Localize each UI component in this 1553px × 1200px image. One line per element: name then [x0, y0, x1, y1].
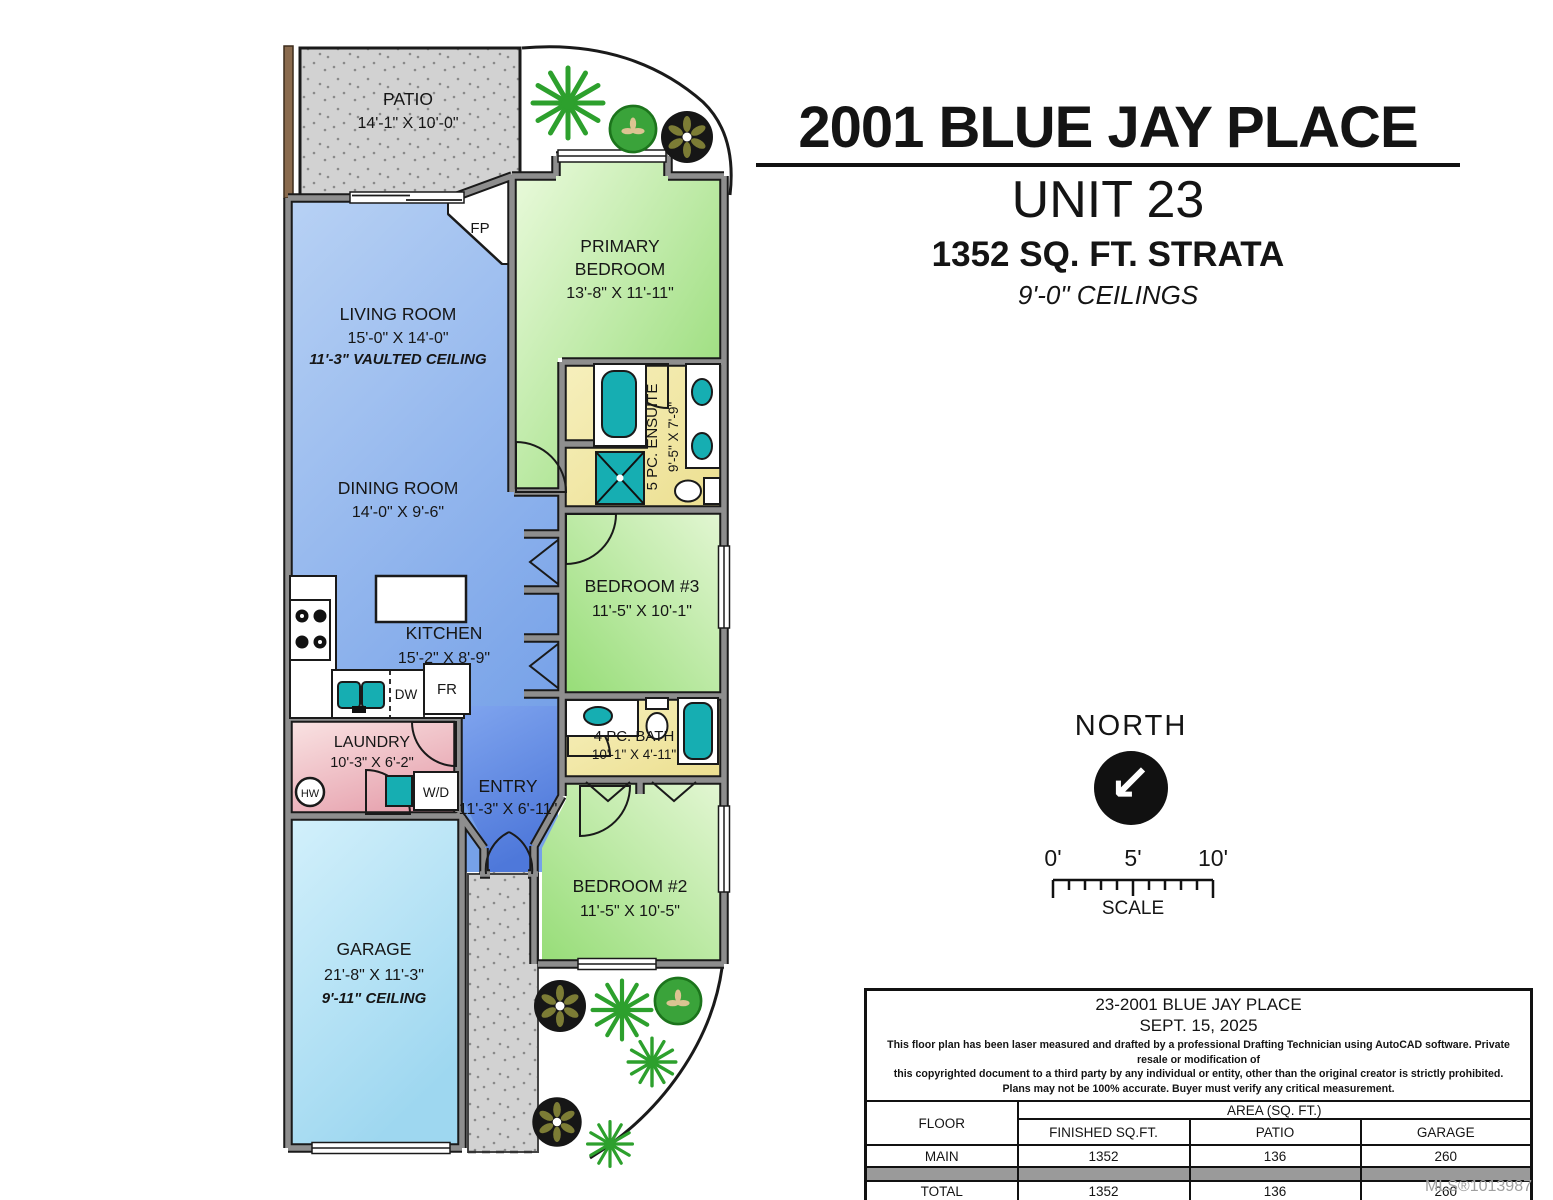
- ensuite-shower: [596, 452, 644, 504]
- bedroom2-window-east: [719, 806, 730, 892]
- washer: [386, 776, 412, 806]
- ceiling-height: 9'-0" CEILINGS: [756, 282, 1460, 309]
- primary-dims: 13'-8" X 11'-11": [566, 285, 674, 302]
- kitchen-label: KITCHEN: [406, 623, 483, 643]
- disclaimer-line-3: Plans may not be 100% accurate. Buyer mu…: [873, 1082, 1524, 1097]
- floor-plan-page: PATIO 14'-1" X 10'-0" LIVING ROOM 15'-0"…: [0, 0, 1553, 1200]
- disclaimer-line-1: This floor plan has been laser measured …: [873, 1038, 1524, 1067]
- table-header-cell: 23-2001 BLUE JAY PLACE SEPT. 15, 2025 Th…: [866, 990, 1532, 1102]
- disclaimer-line-2: this copyrighted document to a third par…: [873, 1067, 1524, 1082]
- primary-bay-window: [558, 150, 666, 162]
- page-title: 2001 BLUE JAY PLACE: [756, 98, 1460, 167]
- garage-dims: 21'-8" X 11'-3": [324, 967, 424, 984]
- kitchen-dims: 15'-2" X 8'-9": [398, 650, 490, 667]
- bedroom2-dims: 11'-5" X 10'-5": [580, 903, 680, 920]
- col-finished-header: FINISHED SQ.FT.: [1018, 1119, 1190, 1145]
- bath-label: 4 PC. BATH: [594, 728, 675, 745]
- dishwasher-label: DW: [395, 687, 418, 702]
- ensuite-sink: [692, 379, 712, 405]
- primary-label-2: BEDROOM: [575, 259, 665, 279]
- main-garage-cell: 260: [1361, 1145, 1532, 1167]
- bedroom2-label: BEDROOM #2: [573, 876, 688, 896]
- dining-dims: 14'-0" X 9'-6": [352, 504, 444, 521]
- north-arrow-icon: ↙: [1109, 758, 1151, 808]
- table-address: 23-2001 BLUE JAY PLACE: [873, 994, 1524, 1015]
- col-patio-header: PATIO: [1190, 1119, 1361, 1145]
- kitchen-sink-2: [362, 682, 384, 708]
- compass-icon: ↙: [1094, 751, 1168, 825]
- bedroom3-dims: 11'-5" X 10'-1": [592, 603, 692, 620]
- fireplace-label: FP: [470, 220, 489, 237]
- bath-sink: [584, 707, 612, 725]
- main-floor-cell: MAIN: [866, 1145, 1018, 1167]
- scale-tick-10: 10': [1198, 846, 1228, 871]
- kitchen-faucet: [352, 706, 366, 713]
- garage-label: GARAGE: [337, 939, 412, 959]
- fence: [284, 46, 293, 198]
- laundry-label: LAUNDRY: [334, 734, 411, 751]
- table-disclaimer: This floor plan has been laser measured …: [873, 1038, 1524, 1096]
- kitchen-island: [376, 576, 466, 622]
- stove: [290, 600, 330, 660]
- bath-dims: 10'-1" X 4'-11": [592, 747, 676, 762]
- dining-label: DINING ROOM: [338, 478, 459, 498]
- living-label: LIVING ROOM: [340, 304, 457, 324]
- separator-cell: [1018, 1167, 1190, 1181]
- total-finished-cell: 1352: [1018, 1181, 1190, 1200]
- scale-tick-5: 5': [1124, 846, 1141, 871]
- area-header: AREA (SQ. FT.): [1018, 1101, 1532, 1119]
- garage-door: [312, 1143, 450, 1154]
- washer-dryer-label: W/D: [423, 785, 449, 800]
- patio-slider-door: [350, 192, 464, 203]
- mls-number: MLS®1013987: [1320, 1178, 1532, 1196]
- ensuite-dims: 9'-5" X 7'-9": [666, 402, 681, 472]
- laundry-dims: 10'-3" X 6'-2": [330, 755, 414, 771]
- hot-water-label: HW: [301, 788, 320, 800]
- primary-label-1: PRIMARY: [580, 236, 660, 256]
- main-patio-cell: 136: [1190, 1145, 1361, 1167]
- ensuite-sink-2: [692, 433, 712, 459]
- scale-tick-0: 0': [1044, 846, 1061, 871]
- scale-ruler: [1053, 880, 1213, 898]
- unit-number: UNIT 23: [756, 173, 1460, 228]
- col-garage-header: GARAGE: [1361, 1119, 1532, 1145]
- room-bedroom2: [542, 784, 720, 960]
- total-floor-cell: TOTAL: [866, 1181, 1018, 1200]
- area-table: 23-2001 BLUE JAY PLACE SEPT. 15, 2025 Th…: [864, 988, 1533, 1200]
- living-note: 11'-3" VAULTED CEILING: [309, 351, 487, 368]
- scale-label: SCALE: [1102, 898, 1164, 918]
- floor-plan-drawing: PATIO 14'-1" X 10'-0" LIVING ROOM 15'-0"…: [0, 0, 760, 1200]
- living-dims: 15'-0" X 14'-0": [347, 330, 448, 347]
- ensuite-tub: [602, 371, 636, 437]
- bedroom3-label: BEDROOM #3: [585, 576, 700, 596]
- bath-tub: [684, 703, 712, 759]
- ensuite-label: 5 PC. ENSUITE: [644, 384, 661, 491]
- col-floor-header: FLOOR: [866, 1101, 1018, 1145]
- scale-bar: 0' 5' 10' SCALE: [1040, 846, 1230, 918]
- north-label: NORTH: [1040, 710, 1222, 743]
- bedroom3-window: [719, 546, 730, 628]
- separator-cell: [866, 1167, 1018, 1181]
- bedroom2-window-south: [578, 959, 656, 970]
- table-date: SEPT. 15, 2025: [873, 1015, 1524, 1036]
- square-footage: 1352 SQ. FT. STRATA: [756, 237, 1460, 274]
- table-row-main: MAIN 1352 136 260: [866, 1145, 1532, 1167]
- north-indicator: NORTH ↙: [1040, 710, 1222, 825]
- main-finished-cell: 1352: [1018, 1145, 1190, 1167]
- patio-label: PATIO: [383, 89, 433, 109]
- entry-dims: 11'-3" X 6'-11": [459, 801, 558, 818]
- kitchen-sink: [338, 682, 360, 708]
- fridge-label: FR: [437, 681, 457, 698]
- title-block: 2001 BLUE JAY PLACE UNIT 23 1352 SQ. FT.…: [756, 98, 1460, 310]
- entry-label: ENTRY: [479, 776, 538, 796]
- garage-note: 9'-11" CEILING: [322, 990, 427, 1007]
- patio-dims: 14'-1" X 10'-0": [357, 115, 458, 132]
- walkway: [468, 846, 538, 1152]
